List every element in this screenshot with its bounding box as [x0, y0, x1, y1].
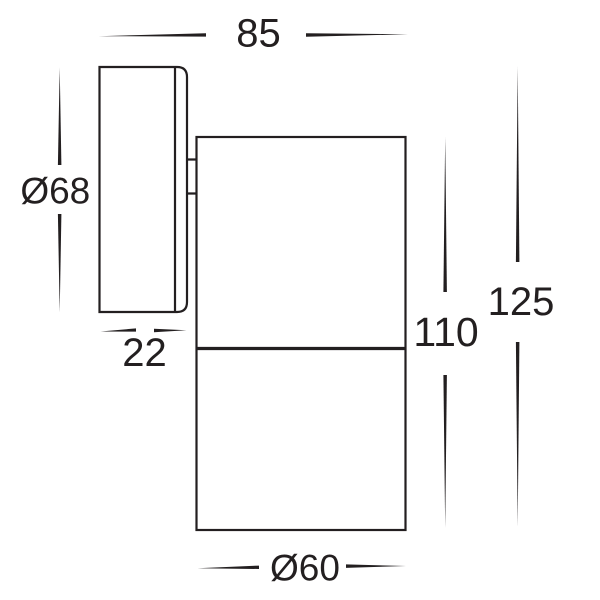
- svg-text:125: 125: [488, 280, 555, 324]
- svg-text:Ø60: Ø60: [270, 548, 340, 589]
- svg-text:22: 22: [122, 331, 167, 375]
- svg-text:Ø68: Ø68: [20, 171, 90, 212]
- svg-text:110: 110: [413, 309, 478, 355]
- svg-text:85: 85: [236, 12, 281, 56]
